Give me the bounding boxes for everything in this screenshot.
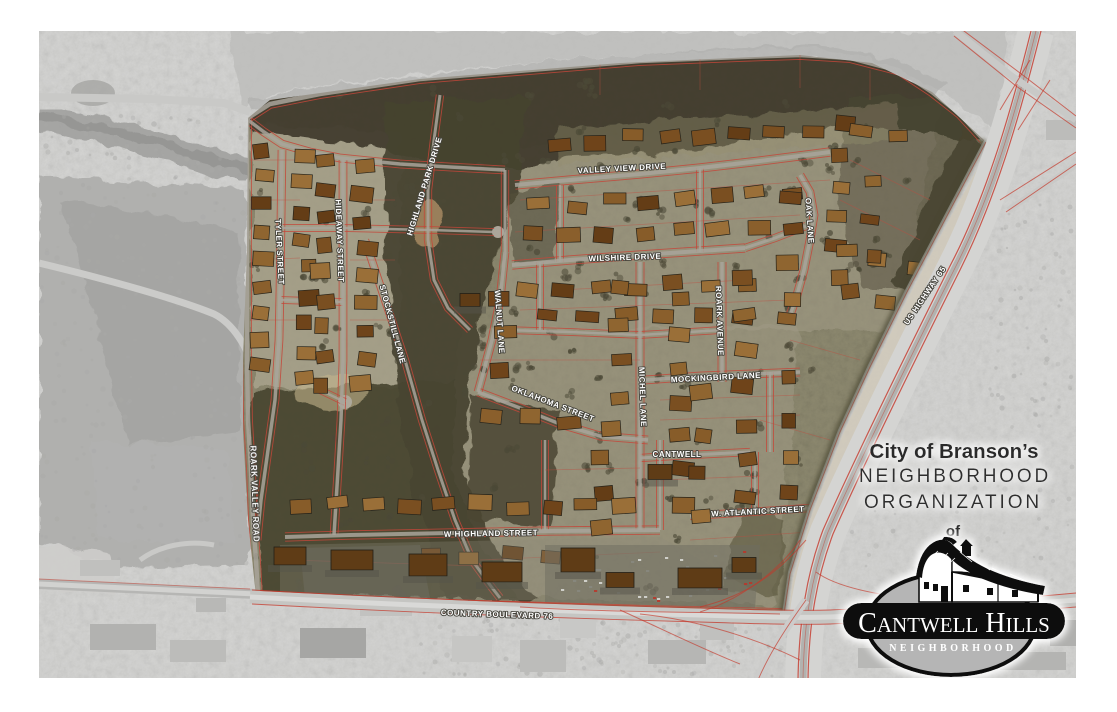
svg-text:NEIGHBORHOOD: NEIGHBORHOOD	[859, 466, 1051, 487]
svg-text:City of Branson’s: City of Branson’s	[870, 440, 1039, 463]
svg-text:W HIGHLAND STREET: W HIGHLAND STREET	[444, 528, 538, 539]
svg-text:ORGANIZATION: ORGANIZATION	[864, 492, 1042, 513]
svg-text:CANTWELL: CANTWELL	[653, 450, 702, 459]
svg-text:NEIGHBORHOOD: NEIGHBORHOOD	[889, 643, 1017, 654]
svg-text:CANTWELL HILLS: CANTWELL HILLS	[858, 608, 1050, 639]
